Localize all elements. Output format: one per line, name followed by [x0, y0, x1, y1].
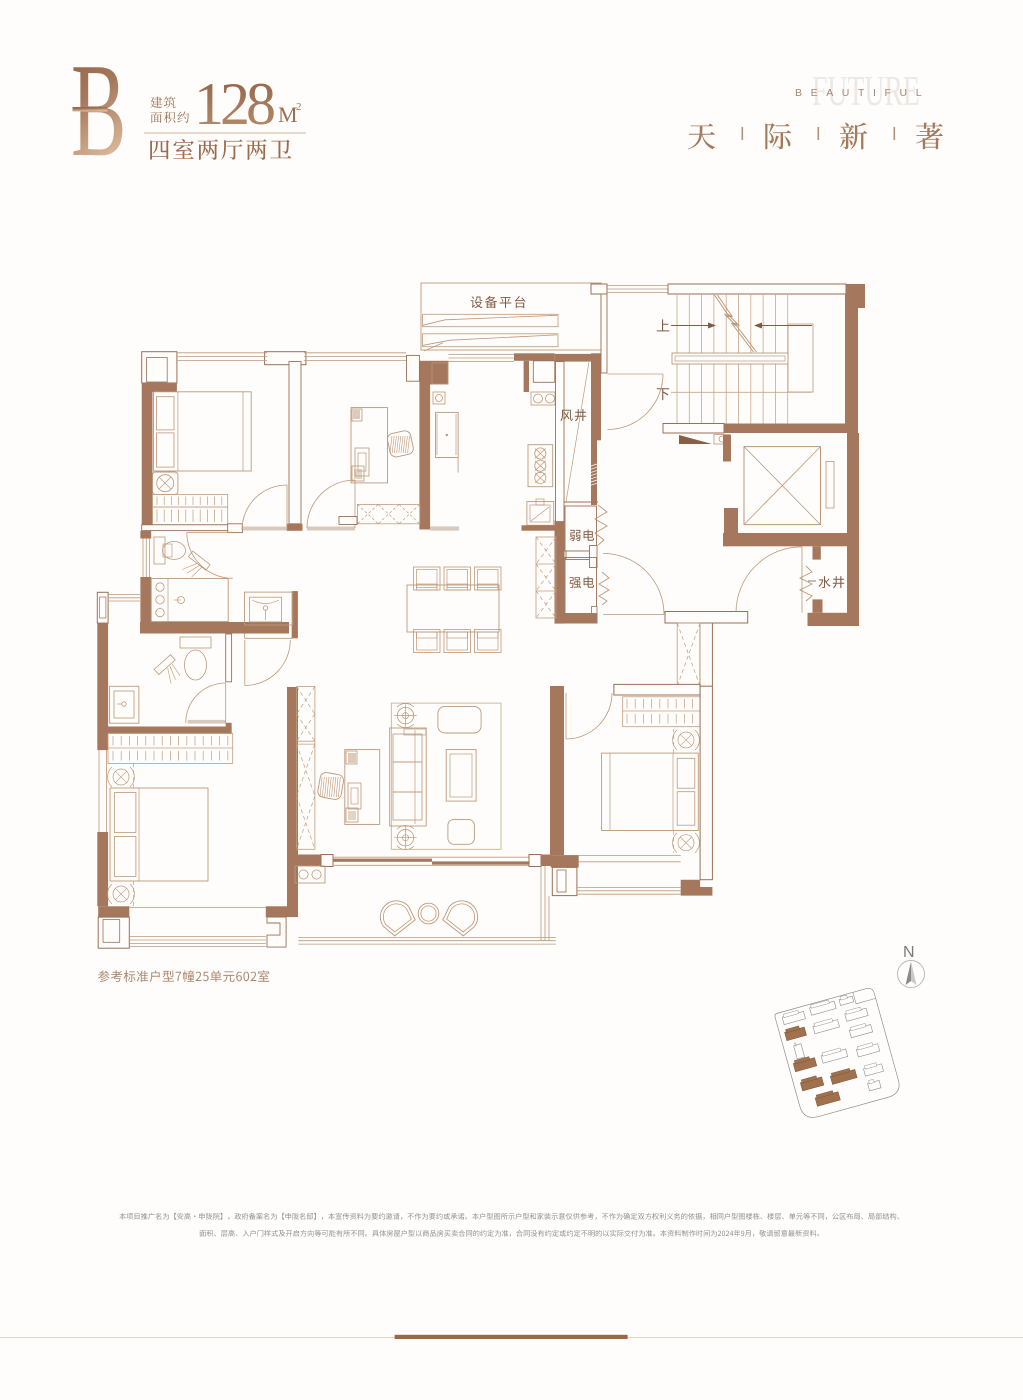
svg-text:128: 128: [194, 71, 276, 137]
svg-text:2: 2: [296, 101, 302, 113]
svg-text:N: N: [903, 944, 915, 961]
svg-text:M: M: [278, 102, 298, 127]
svg-text:BEAUTIFUL: BEAUTIFUL: [795, 87, 930, 99]
